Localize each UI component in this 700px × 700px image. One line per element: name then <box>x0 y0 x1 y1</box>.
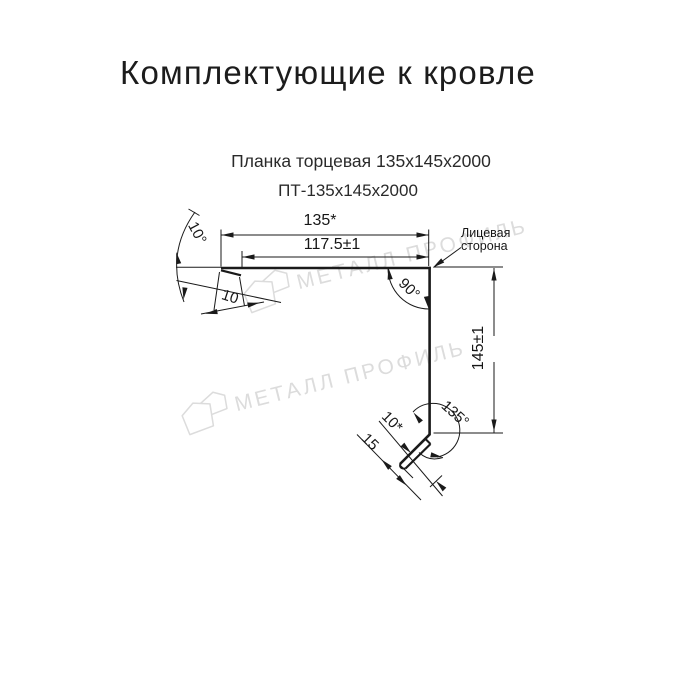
product-code: ПТ-135х145х2000 <box>48 181 648 201</box>
diagram-page: { "title": { "text": "Комплектующие к кр… <box>0 0 700 700</box>
profile-cross-section-drawing <box>0 0 700 700</box>
dim-label-top-width: 135* <box>304 212 337 230</box>
face-side-note: Лицевая сторона <box>461 227 510 253</box>
profile-outline <box>221 267 431 469</box>
page-title: Комплектующие к кровле <box>0 54 656 92</box>
product-name: Планка торцевая 135х145х2000 <box>61 151 661 172</box>
dim-label-side-height: 145±1 <box>470 326 488 370</box>
dimension-lines <box>176 230 503 501</box>
face-side-line2: сторона <box>461 240 510 253</box>
dim-label-top-inner-width: 117.5±1 <box>304 236 361 254</box>
